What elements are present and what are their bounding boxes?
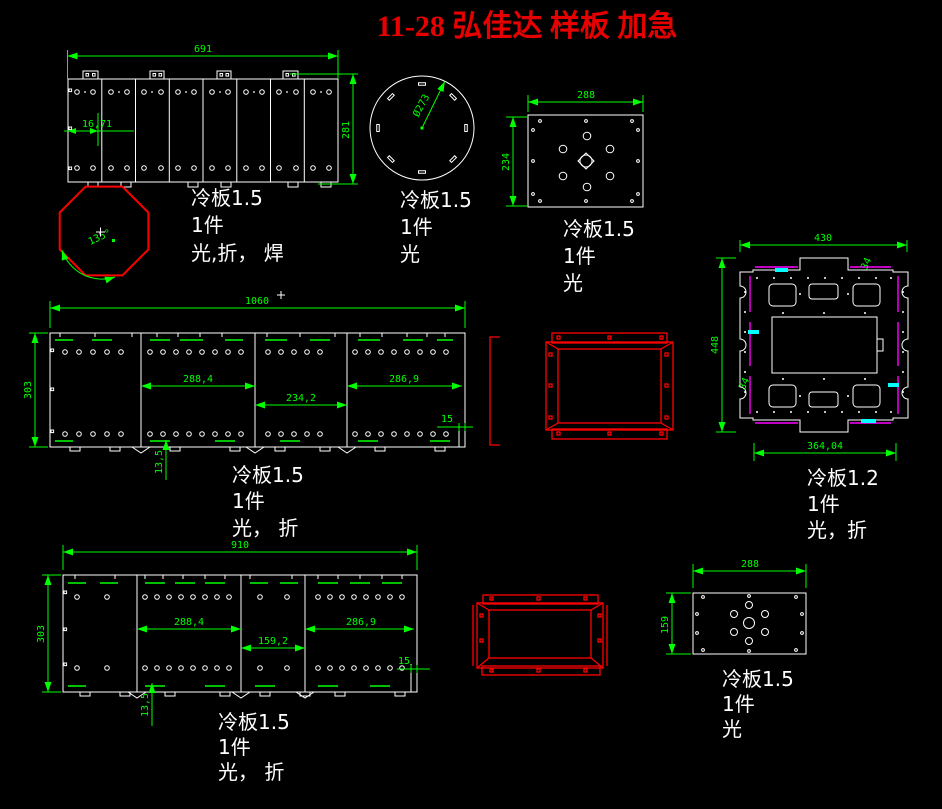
part-label: 冷板1.5 1件 光 bbox=[563, 217, 635, 295]
label-process: 光， 折 bbox=[218, 760, 284, 784]
dim-bottom-364: 364,04 bbox=[807, 441, 843, 452]
label-material: 冷板1.5 bbox=[563, 217, 635, 241]
part-label: 冷板1.5 1件 光 bbox=[400, 188, 472, 266]
dim-seg-286-9: 286,9 bbox=[389, 374, 419, 385]
dim-tab-13-5: 13,5 bbox=[140, 693, 151, 717]
label-qty: 1件 bbox=[563, 244, 596, 268]
dim-seg-288-4: 288,4 bbox=[183, 374, 213, 385]
assembly-view-middle bbox=[490, 333, 673, 445]
holes-top-row bbox=[75, 595, 405, 600]
label-material: 冷板1.2 bbox=[807, 466, 879, 490]
dim-diameter-273: Ø273 bbox=[410, 92, 432, 119]
dim-width-288: 288 bbox=[741, 559, 759, 570]
dim-width-691: 691 bbox=[194, 44, 212, 55]
part-plate-288x159: 288 159 冷板1.5 1件 光 bbox=[660, 559, 806, 741]
label-process: 光，折 bbox=[807, 518, 867, 542]
holes-bottom-row bbox=[75, 666, 405, 671]
note-34-top: 34 bbox=[859, 256, 874, 272]
label-process: 光， 折 bbox=[232, 516, 298, 540]
part-label: 冷板1.5 1件 光， 折 bbox=[218, 710, 290, 784]
label-material: 冷板1.5 bbox=[191, 186, 263, 210]
part-bracket-430: 34 34 430 448 364,04 冷板1.2 1件 光，折 bbox=[710, 233, 908, 542]
label-process: 光 bbox=[563, 271, 583, 295]
label-material: 冷板1.5 bbox=[400, 188, 472, 212]
label-process: 光 bbox=[400, 242, 420, 266]
dim-height-303: 303 bbox=[23, 381, 34, 399]
dim-seg-234-2: 234,2 bbox=[286, 393, 316, 404]
part-disc-273: Ø273 冷板1.5 1件 光 bbox=[370, 76, 474, 266]
dim-width-910: 910 bbox=[231, 540, 249, 551]
label-qty: 1件 bbox=[191, 213, 224, 237]
dim-tab-13-5: 13,5 bbox=[154, 450, 165, 474]
cyan-marks bbox=[748, 268, 899, 423]
dim-seg-286-9: 286,9 bbox=[346, 617, 376, 628]
part-tray-1060: 1060 303 288,4 234,2 286,9 15 13,5 冷板1.5… bbox=[23, 291, 473, 540]
label-qty: 1件 bbox=[232, 489, 265, 513]
drawing-title: 11-28 弘佳达 样板 加急 bbox=[377, 10, 678, 43]
dim-height-303: 303 bbox=[36, 625, 47, 643]
dim-height-159: 159 bbox=[660, 616, 671, 634]
label-material: 冷板1.5 bbox=[232, 463, 304, 487]
assembly-view-bottom bbox=[473, 595, 607, 675]
label-process: 光 bbox=[722, 717, 742, 741]
part-octagon: 135° bbox=[60, 187, 149, 279]
dim-offset-16-71: 16,71 bbox=[82, 119, 112, 130]
dim-seg-159-2: 159,2 bbox=[258, 636, 288, 647]
label-material: 冷板1.5 bbox=[722, 667, 794, 691]
label-qty: 1件 bbox=[807, 492, 840, 516]
label-qty: 1件 bbox=[218, 735, 251, 759]
dim-width-1060: 1060 bbox=[245, 296, 269, 307]
part-label: 冷板1.2 1件 光，折 bbox=[807, 466, 879, 542]
label-qty: 1件 bbox=[722, 692, 755, 716]
dim-width-288: 288 bbox=[577, 90, 595, 101]
part-tray-910: 910 303 288,4 159,2 286,9 15 13,5 冷板1.5 … bbox=[36, 540, 430, 784]
dim-angle-135: 135° bbox=[87, 228, 113, 248]
label-material: 冷板1.5 bbox=[218, 710, 290, 734]
label-process: 光,折， 焊 bbox=[191, 241, 284, 265]
cad-canvas[interactable]: 11-28 弘佳达 样板 加急 691 bbox=[0, 0, 942, 809]
part-plate-288x234: 288 234 冷板1.5 1件 光 bbox=[501, 90, 643, 295]
point-mark-icon bbox=[277, 291, 285, 299]
dim-height-448: 448 bbox=[710, 336, 721, 354]
dim-height-234: 234 bbox=[501, 153, 512, 171]
part-label: 冷板1.5 1件 光 bbox=[722, 667, 794, 741]
dim-edge-15: 15 bbox=[441, 414, 453, 425]
dim-seg-288-4: 288,4 bbox=[174, 617, 204, 628]
part-label: 冷板1.5 1件 光， 折 bbox=[232, 463, 304, 540]
dim-height-281: 281 bbox=[341, 121, 352, 139]
part-label: 冷板1.5 1件 光,折， 焊 bbox=[191, 186, 284, 265]
dim-width-430: 430 bbox=[814, 233, 832, 244]
dim-edge-15: 15 bbox=[398, 656, 410, 667]
top-clips bbox=[83, 71, 298, 79]
label-qty: 1件 bbox=[400, 215, 433, 239]
